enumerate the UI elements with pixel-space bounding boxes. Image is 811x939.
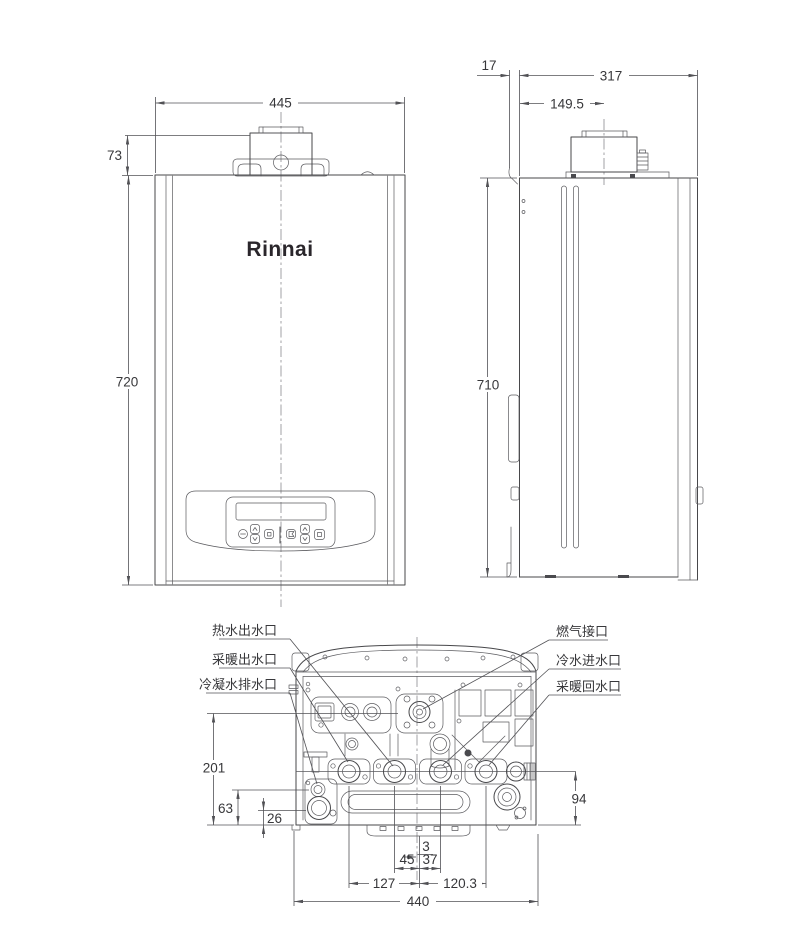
label-gas-connection: 燃气接口 xyxy=(556,624,608,640)
bottom-view: 热水出水口 采暖出水口 冷凝水排水口 燃气接口 冷水进水口 采暖回水口 xyxy=(199,624,621,909)
leader-heating-return xyxy=(489,695,549,765)
wall-bracket-cleat xyxy=(509,395,520,462)
label-hot-water-outlet: 热水出水口 xyxy=(212,624,277,639)
side-flue xyxy=(566,131,669,178)
down-button-2 xyxy=(301,535,310,544)
down-button xyxy=(251,535,260,544)
up-button-2 xyxy=(301,525,310,534)
side-dimensions: 17 317 149.5 710 xyxy=(472,58,698,577)
left-service-box xyxy=(311,697,391,733)
pump-boss xyxy=(494,784,526,819)
dim-heating-flow: 127 xyxy=(373,876,396,891)
bottom-hook xyxy=(507,527,511,577)
technical-drawing-page: Rinnai xyxy=(0,0,811,939)
dark-screw xyxy=(465,750,472,757)
side-view: 17 317 149.5 710 xyxy=(472,58,703,580)
dim-bottom-width: 440 xyxy=(407,894,430,909)
front-cabinet xyxy=(155,172,405,585)
bracket-tab xyxy=(511,487,519,500)
leader-hot-water xyxy=(290,639,393,766)
dim-cold-water: 37 xyxy=(422,852,437,867)
dim-gas-height: 201 xyxy=(203,761,226,776)
up-button xyxy=(251,525,260,534)
control-panel xyxy=(186,491,375,551)
condensate-assembly xyxy=(305,779,337,824)
side-vent-slot xyxy=(562,186,567,548)
flue-lip-side xyxy=(582,131,627,137)
label-cold-water-inlet: 冷水进水口 xyxy=(556,654,621,669)
connection-labels: 热水出水口 采暖出水口 冷凝水排水口 燃气接口 冷水进水口 采暖回水口 xyxy=(199,624,621,784)
side-vent-slot-2 xyxy=(574,186,579,548)
step-left xyxy=(292,825,300,830)
leader-heating-outlet xyxy=(290,668,348,762)
dim-heating-return: 120.3 xyxy=(443,876,477,891)
dim-condensate-height: 63 xyxy=(218,801,233,816)
label-heating-return: 采暖回水口 xyxy=(556,680,621,695)
dim-front-width: 445 xyxy=(269,96,292,111)
dim-drain-height: 26 xyxy=(267,811,282,826)
dim-side-flue-center: 149.5 xyxy=(550,97,584,112)
side-body xyxy=(507,178,703,580)
dim-front-height: 720 xyxy=(116,375,139,390)
label-condensate-drain: 冷凝水排水口 xyxy=(199,677,277,693)
mode-button xyxy=(265,530,274,539)
dim-side-depth: 317 xyxy=(600,69,623,84)
dim-side-height: 710 xyxy=(477,378,500,393)
panel-buttons xyxy=(239,525,325,544)
heating-button xyxy=(287,530,296,539)
front-view: Rinnai xyxy=(107,95,405,607)
label-heating-outlet: 采暖出水口 xyxy=(212,653,277,668)
right-frame-grid xyxy=(452,683,533,770)
dim-hot-water: 45 xyxy=(399,852,414,867)
brand-logo: Rinnai xyxy=(246,238,313,261)
notch-right xyxy=(496,825,510,830)
dim-ports-height: 94 xyxy=(571,792,587,807)
dim-side-bracket-offset: 17 xyxy=(481,58,496,73)
leader-cold-water xyxy=(443,669,549,765)
boiler-dimension-drawing: Rinnai xyxy=(0,0,811,939)
gas-flange xyxy=(396,694,443,733)
stop-button xyxy=(315,530,325,540)
air-inlet-knob xyxy=(637,153,648,170)
bracket-hook-detail xyxy=(509,168,518,184)
front-dimensions: 445 73 720 xyxy=(107,95,405,585)
leader-condensate xyxy=(290,693,317,784)
bottom-internals xyxy=(296,683,576,824)
dim-front-top-height: 73 xyxy=(107,148,122,163)
